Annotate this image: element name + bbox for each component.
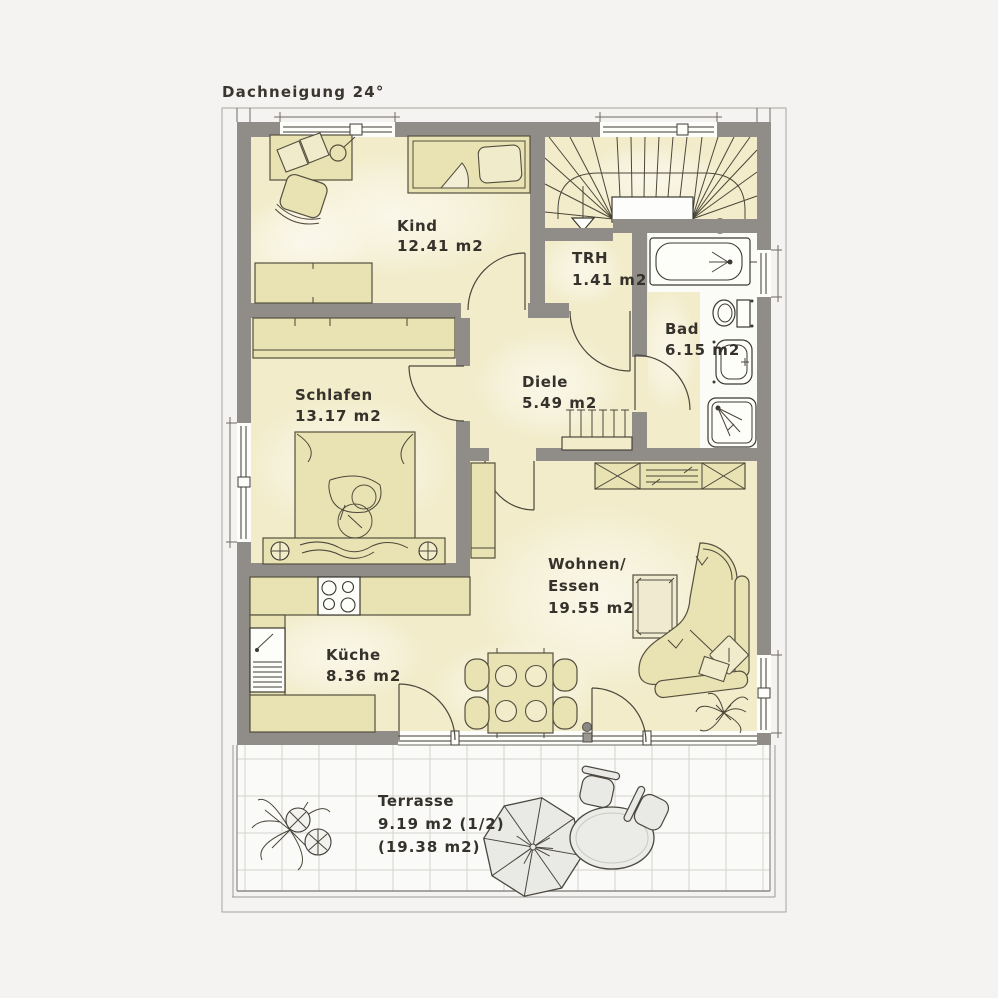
terrace-post	[583, 723, 592, 732]
room-diele-area: 5.49 m2	[522, 394, 597, 412]
wardrobe	[253, 318, 455, 358]
floor-plan-page: Dachneigung 24° Kind 12.41 m2 TRH 1.41 m…	[0, 0, 998, 998]
room-diele-name: Diele	[522, 373, 568, 391]
room-kind-area: 12.41 m2	[397, 237, 484, 255]
room-terrasse-area-line1: 9.19 m2 (1/2)	[378, 815, 505, 833]
bathtub	[650, 238, 757, 285]
room-trh-area: 1.41 m2	[572, 271, 647, 289]
room-bad-name: Bad	[665, 320, 699, 338]
plan-title: Dachneigung 24°	[222, 83, 385, 101]
room-kueche-area: 8.36 m2	[326, 667, 401, 685]
room-wohnen-name-line1: Wohnen/	[548, 555, 626, 573]
room-terrasse-area-line2: (19.38 m2)	[378, 838, 480, 856]
room-schlafen-area: 13.17 m2	[295, 407, 382, 425]
coffee-table	[633, 575, 677, 638]
room-wohnen-area: 19.55 m2	[548, 599, 635, 617]
kitchen-sink	[250, 628, 285, 692]
stair-landing	[612, 197, 693, 222]
kind-sideboard	[255, 263, 372, 303]
floor-plan-drawing: Dachneigung 24° Kind 12.41 m2 TRH 1.41 m…	[0, 0, 998, 998]
dining-table	[488, 653, 553, 733]
room-schlafen-name: Schlafen	[295, 386, 373, 404]
dining-chair	[553, 697, 577, 729]
kind-bed	[408, 136, 530, 193]
kitchen-counter-bottom	[250, 695, 375, 732]
shower	[708, 398, 756, 447]
sideboard	[595, 463, 745, 489]
room-trh-name: TRH	[572, 249, 608, 267]
dining-chair	[553, 659, 577, 691]
room-kind-name: Kind	[397, 217, 438, 235]
room-kueche-name: Küche	[326, 646, 381, 664]
dining-chair	[465, 659, 489, 691]
tall-cabinet	[471, 463, 495, 558]
room-terrasse-name: Terrasse	[378, 792, 454, 810]
dining-chair	[465, 697, 489, 729]
room-wohnen-name-line2: Essen	[548, 577, 600, 595]
room-bad-area: 6.15 m2	[665, 341, 740, 359]
